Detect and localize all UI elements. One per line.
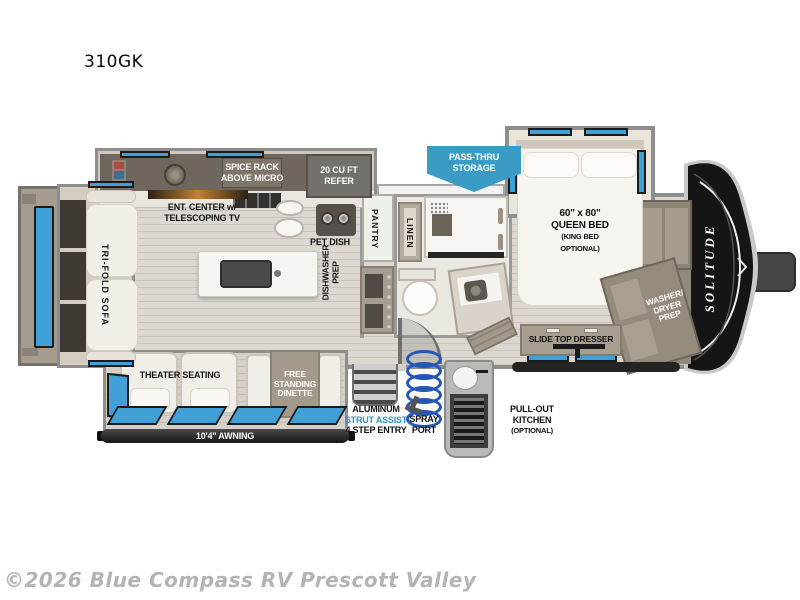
- pillow: [523, 152, 579, 178]
- floorplan-title: 310GK: [84, 52, 143, 72]
- sofa-storage: [60, 304, 86, 352]
- vent: [22, 194, 36, 204]
- pet-dish-station: [316, 204, 356, 236]
- tri-fold-sofa: [86, 279, 138, 351]
- label-tri-fold-sofa: TRI-FOLD SOFA: [100, 230, 110, 340]
- theater-seat: [180, 352, 238, 414]
- pull-out-kitchen-unit: [444, 360, 494, 458]
- window: [88, 360, 134, 367]
- label-pass-thru-storage: PASS-THRU STORAGE: [427, 152, 521, 173]
- vent: [22, 348, 38, 356]
- stereo-unit: [112, 160, 126, 182]
- entry-steps: [352, 364, 398, 406]
- tv-lift: [148, 190, 248, 199]
- window: [528, 128, 572, 136]
- label-slide-top-dresser: SLIDE TOP DRESSER: [524, 334, 618, 345]
- pullout-grill: [450, 394, 488, 448]
- label-pull-out-kitchen: PULL-OUT KITCHEN (OPTIONAL): [490, 404, 574, 436]
- label-free-standing-dinette: FREE STANDING DINETTE: [266, 370, 324, 399]
- tri-fold-sofa: [86, 204, 138, 277]
- shower: [424, 196, 508, 258]
- pillow: [581, 152, 637, 178]
- label-theater-seating: THEATER SEATING: [118, 370, 242, 381]
- kitchen-sink: [276, 200, 304, 216]
- toilet: [398, 268, 436, 281]
- shower-control: [432, 214, 452, 236]
- label-dishwasher-prep: DISHWASHER PREP: [322, 238, 341, 308]
- pullout-sink: [452, 366, 478, 390]
- label-linen: LINEN: [405, 210, 415, 256]
- label-refer: 20 CU FT REFER: [306, 165, 372, 186]
- label-pantry: PANTRY: [370, 200, 380, 258]
- window: [34, 206, 54, 348]
- sofa-storage: [60, 252, 86, 300]
- tv-stand: [575, 349, 580, 358]
- brand-logo-solitude: SOLITUDE: [702, 203, 722, 333]
- kitchen-sink: [274, 218, 304, 238]
- toilet-bowl: [402, 280, 438, 316]
- pullout-faucet: [476, 370, 488, 373]
- lower-cabinet: [360, 266, 394, 334]
- vanity-sink: [464, 279, 489, 302]
- shower-glass: [428, 252, 504, 258]
- label-awning: 10'4" AWNING: [101, 431, 349, 442]
- window: [120, 151, 170, 158]
- watermark: ©2026 Blue Compass RV Prescott Valley: [4, 568, 476, 592]
- island-faucet: [274, 270, 281, 277]
- floorplan-page: 310GK SOLITUDE ENT. CENTER w/ TELESCOPIN…: [0, 0, 800, 600]
- window: [206, 151, 264, 158]
- label-queen-bed: 60" x 80" QUEEN BED (KING BED OPTIONAL): [523, 208, 637, 254]
- label-ent-center: ENT. CENTER w/ TELESCOPING TV: [146, 202, 258, 223]
- label-spray-port: SPRAY PORT: [396, 414, 452, 435]
- label-washer-dryer-prep: WASHER/ DRYER PREP: [643, 288, 691, 327]
- window: [88, 181, 134, 188]
- label-spice-rack: SPICE RACK ABOVE MICRO: [198, 162, 306, 183]
- bedroom-trim-bar: [512, 362, 680, 372]
- window: [637, 150, 646, 194]
- island-sink: [220, 260, 272, 288]
- shower-head-icon: [430, 202, 448, 214]
- speaker-icon: [164, 164, 186, 186]
- sofa-storage: [60, 200, 86, 248]
- sofa-armrest: [86, 190, 136, 203]
- awning-bar: 10'4" AWNING: [101, 429, 349, 443]
- window: [584, 128, 628, 136]
